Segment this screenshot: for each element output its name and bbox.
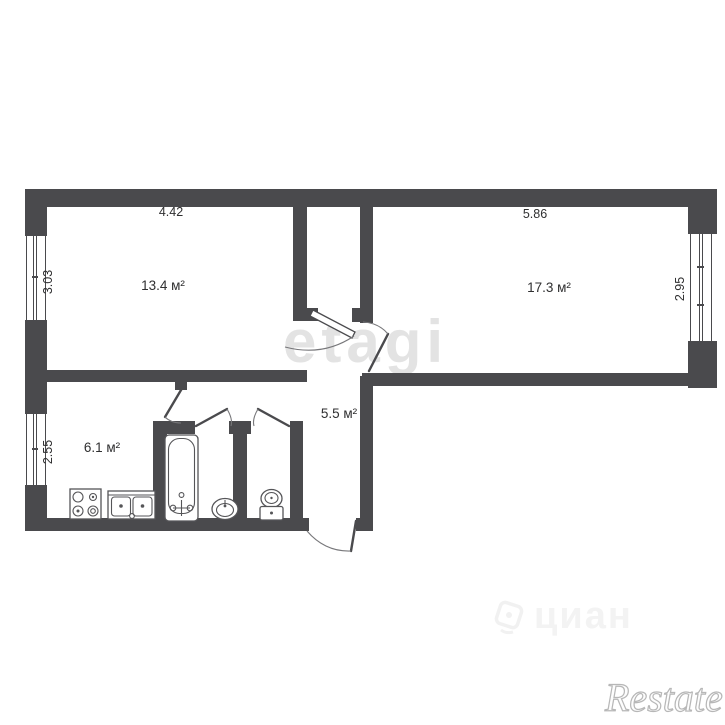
washbasin-icon xyxy=(212,499,238,520)
wall-wc-right xyxy=(290,421,303,531)
dim-room2-depth: 2.95 xyxy=(673,277,687,301)
door-bathroom xyxy=(196,409,232,426)
door-wc xyxy=(254,409,290,426)
kitchen-area-label: 6.1 м² xyxy=(84,440,121,455)
restate-watermark: Restate xyxy=(605,678,723,718)
window-room2 xyxy=(688,233,717,342)
room2-area-label: 17.3 м² xyxy=(527,280,571,295)
wall-closet-right xyxy=(360,207,373,323)
walls xyxy=(25,189,717,531)
wall-outer-left-a xyxy=(25,189,47,235)
hallway-area-label: 5.5 м² xyxy=(321,406,358,421)
toilet-icon xyxy=(260,490,283,521)
wall-bath-top xyxy=(153,421,195,434)
wall-divider-left xyxy=(25,370,307,382)
floorplan-image: etagi циан xyxy=(0,0,725,725)
wall-hallway-right xyxy=(360,376,373,531)
kitchen-sink-icon xyxy=(108,491,155,519)
wall-room1-right xyxy=(293,207,307,308)
door-kitchen xyxy=(165,385,184,423)
dim-room1-depth: 3.03 xyxy=(41,270,55,294)
wall-outer-left-b xyxy=(25,321,47,413)
dim-room2-width: 5.86 xyxy=(523,207,547,221)
room1-area-label: 13.4 м² xyxy=(141,278,185,293)
dim-kitchen-depth: 2.55 xyxy=(41,440,55,464)
stove-icon xyxy=(70,489,101,519)
floorplan-drawing: 4.42 3.03 13.4 м² 5.86 2.95 17.3 м² 2.55… xyxy=(0,0,725,725)
bathtub-icon xyxy=(165,435,198,521)
wall-outer-top xyxy=(25,189,717,207)
door-entrance xyxy=(307,521,356,551)
door-room2 xyxy=(363,322,388,371)
wall-outer-right-a xyxy=(688,189,717,233)
wall-outer-bottom-right xyxy=(362,373,717,386)
wall-closet-right-stub xyxy=(352,308,373,322)
dim-room1-width: 4.42 xyxy=(159,205,183,219)
